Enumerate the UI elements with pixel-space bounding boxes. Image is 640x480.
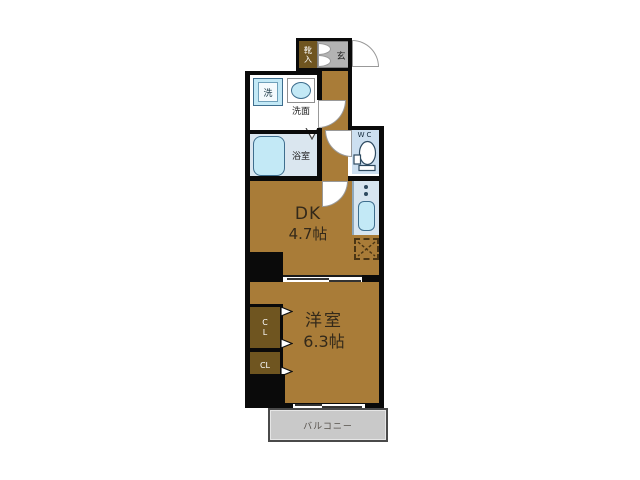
wall-corridor-left-upper <box>317 75 322 100</box>
toilet-icon <box>353 140 378 173</box>
stove-burner-icon <box>364 185 368 189</box>
stove-burner-icon <box>364 192 368 196</box>
bedroom-name: 洋室 <box>288 310 360 332</box>
genkan-area: 玄 <box>317 41 349 68</box>
wall-washroom-top <box>245 71 322 75</box>
entrance-door-arc-icon <box>352 40 379 67</box>
bedroom-size: 6.3帖 <box>288 332 360 353</box>
shoe-cabinet-label: 靴入 <box>303 46 314 64</box>
wall-corridor-left-lower <box>317 128 322 178</box>
washbasin-icon <box>287 78 315 103</box>
wall-block-dk-left <box>245 252 283 282</box>
wc-label: WC <box>352 131 379 139</box>
shoe-cabinet: 靴入 <box>299 41 317 68</box>
refrigerator-space-icon <box>354 238 379 260</box>
closet-upper-label: CL <box>261 318 270 338</box>
balcony: バルコニー <box>268 408 388 442</box>
sliding-door-panel <box>287 278 329 280</box>
washroom-floor: 洗 洗面 <box>250 75 318 130</box>
wall-dk-bedroom-right <box>362 275 379 282</box>
closet-lower-label: CL <box>260 361 270 370</box>
bathroom-floor: 浴室 <box>250 134 318 178</box>
dk-room-label: DK 4.7帖 <box>272 203 344 245</box>
basin-label: 洗面 <box>284 104 318 117</box>
sliding-window-icon <box>293 404 365 408</box>
bathtub-icon <box>253 136 285 176</box>
wall-corridor-right <box>348 38 352 130</box>
wc-floor: WC <box>352 130 379 174</box>
bathroom-label: 浴室 <box>287 149 315 162</box>
wall-block-bedroom-corner <box>245 374 285 408</box>
cabinet-door-icon <box>318 55 331 67</box>
cabinet-door-icon <box>318 43 331 55</box>
genkan-label: 玄 <box>334 49 348 62</box>
washing-machine-icon: 洗 <box>253 78 283 106</box>
bedroom-room-label: 洋室 6.3帖 <box>288 310 360 353</box>
floor-plan: 靴入 玄 洗 洗面 浴室 WC <box>0 0 640 480</box>
wall-right <box>379 126 384 408</box>
balcony-label: バルコニー <box>303 419 353 432</box>
kitchen-counter <box>352 181 379 235</box>
dk-size: 4.7帖 <box>272 225 344 245</box>
washer-label: 洗 <box>263 86 272 99</box>
sliding-window-panel <box>295 404 322 406</box>
closet-upper: CL <box>250 307 280 348</box>
dk-name: DK <box>272 203 344 225</box>
kitchen-sink-icon <box>358 201 375 231</box>
wall-washroom-bath-divider <box>245 130 322 134</box>
